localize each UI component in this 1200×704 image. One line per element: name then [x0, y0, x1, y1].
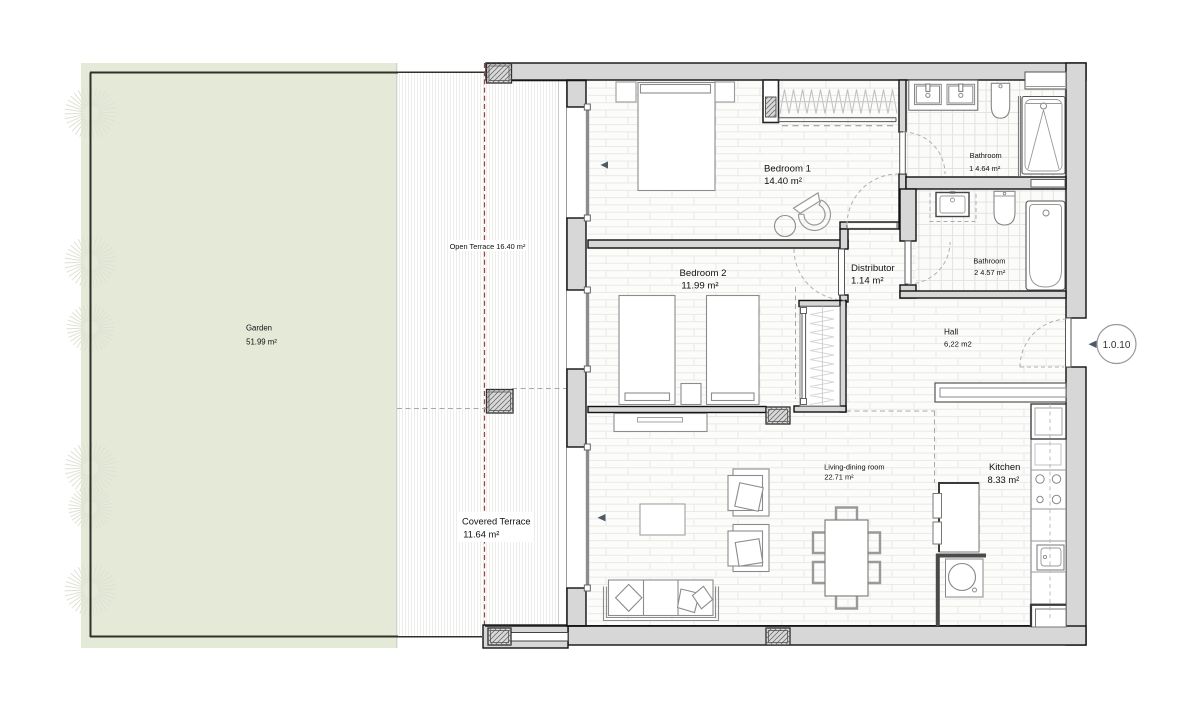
svg-text:1 4.64 m²: 1 4.64 m² — [969, 164, 1001, 173]
svg-text:Bedroom 1: Bedroom 1 — [764, 164, 811, 175]
svg-text:Living-dining room: Living-dining room — [824, 463, 884, 472]
svg-text:Kitchen: Kitchen — [989, 461, 1020, 472]
svg-text:Covered Terrace: Covered Terrace — [462, 517, 531, 527]
svg-text:11.99 m²: 11.99 m² — [681, 281, 719, 292]
svg-text:2 4.57 m²: 2 4.57 m² — [974, 268, 1006, 277]
svg-text:Open Terrace 16.40 m²: Open Terrace 16.40 m² — [450, 242, 526, 251]
svg-text:14.40 m²: 14.40 m² — [764, 176, 803, 187]
svg-text:Bathroom: Bathroom — [973, 257, 1005, 266]
svg-text:51.99 m²: 51.99 m² — [246, 338, 277, 347]
svg-text:Garden: Garden — [246, 324, 272, 333]
svg-text:6,22 m2: 6,22 m2 — [944, 339, 972, 348]
svg-text:22.71 m²: 22.71 m² — [824, 472, 854, 481]
svg-text:Distributor: Distributor — [851, 263, 896, 274]
svg-text:8.33 m²: 8.33 m² — [988, 474, 1020, 485]
svg-text:Bathroom: Bathroom — [970, 151, 1002, 160]
svg-text:1.0.10: 1.0.10 — [1103, 340, 1131, 351]
svg-text:Bedroom 2: Bedroom 2 — [680, 268, 727, 279]
svg-text:Hall: Hall — [944, 328, 958, 337]
svg-text:11.64 m²: 11.64 m² — [463, 530, 499, 540]
svg-text:1.14 m²: 1.14 m² — [851, 276, 884, 287]
